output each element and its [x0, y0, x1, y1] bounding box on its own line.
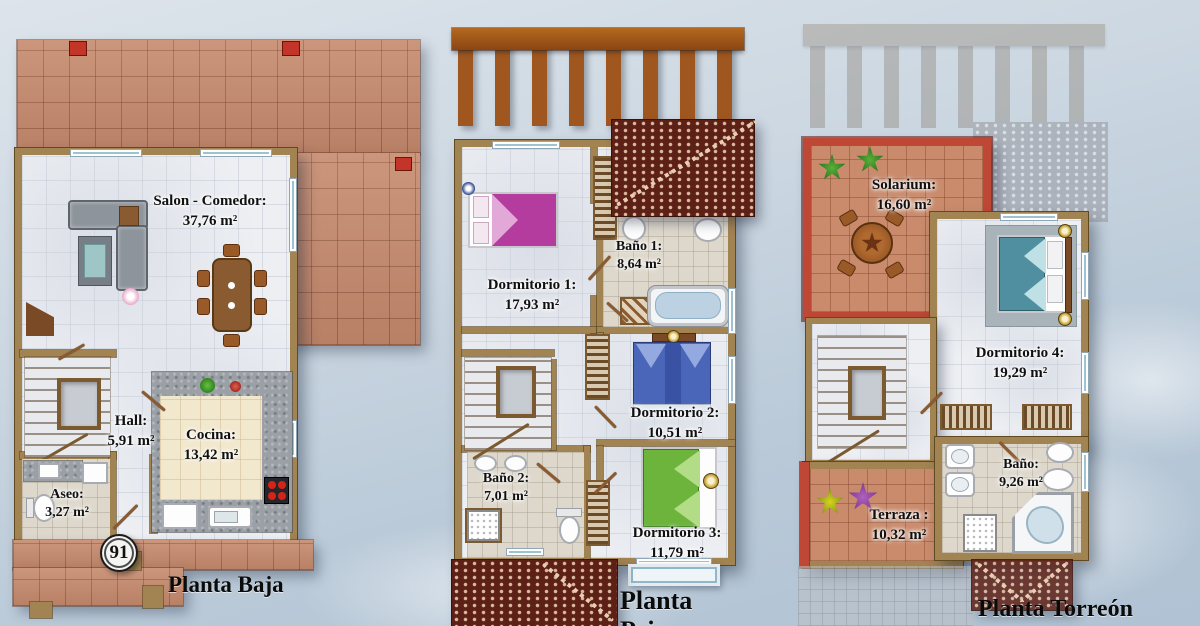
bed-2-headboard — [652, 333, 696, 342]
burner — [278, 492, 286, 500]
coffee-table-top — [84, 244, 106, 278]
sink-basin — [214, 511, 238, 523]
door-leaf — [141, 390, 166, 412]
door-leaf — [594, 405, 617, 429]
pillow — [636, 344, 666, 368]
bed-4 — [997, 235, 1069, 313]
door-leaf — [920, 391, 943, 414]
interior-wall — [462, 350, 554, 356]
stair-room — [806, 318, 936, 466]
floor-plan-sheet: Salon - Comedor: 37,76 m² Hall: 5,91 m² … — [0, 0, 1200, 626]
bath1-floor — [603, 213, 728, 327]
chair — [254, 270, 267, 287]
roof-tiles — [612, 120, 754, 216]
terrace-tiles — [13, 540, 313, 570]
interior-wall — [617, 207, 735, 213]
bed-4-fold — [1024, 276, 1046, 312]
fireplace — [26, 302, 54, 336]
room-label-dormitorio-2: Dormitorio 2: 10,51 m² — [622, 404, 728, 443]
roof-ridge — [616, 120, 757, 207]
bath1-sink — [622, 216, 646, 241]
burner — [278, 481, 286, 489]
door-leaf — [58, 343, 85, 361]
terrace-tiles — [17, 40, 420, 155]
cloud-shape — [900, 430, 1200, 610]
window — [1081, 252, 1089, 300]
house-outline — [15, 148, 297, 548]
bed-1 — [468, 192, 558, 248]
bath2-sink — [504, 455, 527, 472]
plant-icon — [816, 488, 844, 516]
window — [200, 149, 272, 157]
bed-1-blanket — [492, 194, 556, 246]
interior-wall — [550, 360, 556, 450]
bed-3 — [641, 447, 717, 529]
toilet — [33, 494, 55, 522]
chair — [884, 261, 905, 280]
window — [728, 356, 736, 404]
bed-4-headboard — [1065, 237, 1072, 313]
bed-3-blanket — [643, 449, 699, 527]
sofa — [68, 200, 148, 230]
pouf — [122, 288, 139, 305]
interior-wall — [597, 240, 603, 333]
bathtub-basin — [655, 292, 721, 319]
plan-title-baja: Planta Baja — [168, 572, 318, 598]
bed-4-lamp — [1058, 224, 1072, 238]
door-leaf — [594, 472, 618, 495]
coffee-table — [78, 236, 112, 286]
interior-wall — [597, 446, 603, 516]
interior-wall — [591, 148, 597, 203]
chair — [197, 270, 210, 287]
kitchen-floor — [160, 396, 262, 500]
interior-wall — [462, 327, 597, 333]
nightstand — [462, 182, 475, 195]
window — [1000, 213, 1058, 221]
door-leaf — [588, 255, 612, 281]
bed-2-lamp — [667, 330, 680, 343]
bed-4-blanket — [999, 237, 1045, 311]
chair — [838, 209, 859, 228]
wardrobe — [940, 404, 992, 430]
pillar — [123, 552, 141, 570]
bed-1-fold — [492, 194, 518, 246]
interior-wall — [109, 452, 116, 544]
aseo-floor — [22, 459, 110, 543]
stairwell — [496, 366, 536, 418]
bed-3-lamp — [703, 473, 719, 489]
interior-wall — [20, 452, 116, 459]
hob — [264, 477, 289, 504]
table-center — [861, 232, 883, 254]
chair — [197, 298, 210, 315]
terrace-post — [396, 158, 411, 170]
chair — [223, 334, 240, 347]
interior-wall — [597, 327, 735, 333]
step — [30, 602, 52, 618]
sofa — [116, 225, 148, 291]
interior-wall — [597, 333, 603, 393]
interior-wall — [591, 296, 597, 333]
interior-wall — [597, 440, 735, 446]
interior-wall — [20, 350, 116, 357]
rug — [985, 225, 1077, 327]
bath2-sink — [474, 455, 497, 472]
side-table — [119, 206, 139, 226]
staircase — [465, 358, 551, 450]
interior-wall — [150, 455, 157, 533]
pergola-beam — [452, 28, 744, 50]
bed-3-fold — [674, 450, 700, 488]
aseo-counter — [24, 461, 82, 481]
cloud-shape — [300, 520, 700, 626]
toilet-tank — [556, 508, 582, 517]
room-label-bano-2: Baño 2: 7,01 m² — [462, 470, 550, 506]
bed-2-foot — [633, 404, 711, 412]
door-leaf — [112, 504, 138, 530]
chair — [836, 259, 857, 278]
aseo-sink — [38, 463, 60, 479]
bed-2-blanket — [633, 342, 711, 406]
pillow — [1047, 275, 1063, 303]
plan-number-badge: 91 — [100, 534, 138, 572]
window — [728, 288, 736, 334]
window — [492, 141, 560, 149]
plant-icon — [818, 154, 846, 182]
table-decor — [228, 282, 235, 289]
plant-icon — [848, 482, 878, 512]
bathtub — [648, 286, 728, 326]
plant-icon — [200, 378, 215, 393]
room-label-solarium: Solarium: 16,60 m² — [843, 176, 965, 215]
pillow — [1047, 241, 1063, 269]
bed-2-stripe — [665, 343, 681, 405]
bed-4-fold — [1024, 238, 1046, 274]
room-label-aseo: Aseo: 3,27 m² — [34, 486, 100, 522]
chair — [254, 298, 267, 315]
hatch — [620, 297, 650, 325]
pergola-slats — [810, 44, 1100, 128]
bed-3-fold — [674, 490, 700, 528]
wardrobe — [593, 156, 617, 240]
staircase — [818, 336, 906, 448]
burner — [268, 492, 276, 500]
pillow — [473, 196, 489, 218]
door-leaf — [606, 302, 629, 323]
table-decor — [228, 302, 235, 309]
chair — [884, 209, 905, 228]
window — [70, 149, 142, 157]
dining-table — [212, 258, 252, 332]
terrace-tiles — [13, 568, 183, 606]
burner — [268, 481, 276, 489]
kitchen-counter — [152, 372, 292, 532]
washbasin — [82, 462, 108, 484]
stair-rail — [824, 429, 880, 465]
kitchen-sink — [208, 506, 252, 528]
bath1-toilet — [694, 218, 722, 242]
pillow — [680, 344, 710, 368]
decor-icon — [230, 381, 241, 392]
terrace-tiles — [285, 153, 420, 345]
terrace-post — [283, 42, 299, 55]
chair — [223, 244, 240, 257]
stair-rail — [33, 433, 88, 467]
staircase — [25, 357, 110, 457]
room-label-cocina: Cocina: 13,42 m² — [165, 426, 257, 465]
interior-wall — [462, 446, 590, 452]
pillar — [143, 586, 163, 608]
window — [289, 420, 297, 458]
stairwell — [848, 366, 886, 420]
plant-icon — [856, 146, 884, 174]
pergola-slats — [458, 40, 738, 126]
stairwell — [57, 378, 101, 430]
window — [88, 540, 126, 548]
solarium — [803, 138, 991, 320]
door-leaf — [536, 462, 561, 484]
toilet-tank — [26, 498, 34, 518]
room-label-hall: Hall: 5,91 m² — [95, 412, 167, 451]
window — [289, 178, 297, 252]
patio-table — [851, 222, 893, 264]
wardrobe — [585, 334, 610, 400]
pillow — [473, 222, 489, 244]
pergola-beam — [803, 24, 1105, 46]
terraza-red-wall — [800, 462, 809, 568]
stair-rail — [472, 423, 530, 461]
terrace-post — [70, 42, 86, 55]
roof-tiles-ghost — [973, 122, 1108, 222]
room-label-salon-comedor: Salon - Comedor: 37,76 m² — [150, 192, 270, 231]
fridge — [162, 503, 198, 529]
room-label-dormitorio-1: Dormitorio 1: 17,93 m² — [472, 276, 592, 315]
room-label-bano-1: Baño 1: 8,64 m² — [596, 238, 682, 274]
house-outline — [455, 140, 735, 565]
